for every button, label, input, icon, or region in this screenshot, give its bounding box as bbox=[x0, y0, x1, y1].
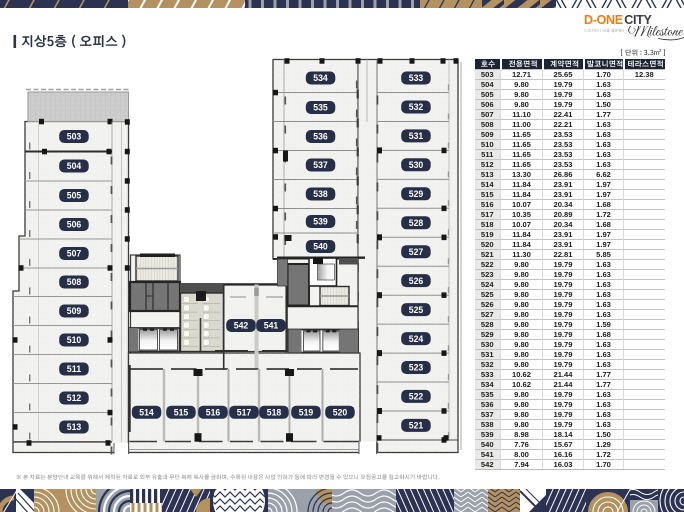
svg-text:522: 522 bbox=[409, 392, 424, 402]
svg-text:524: 524 bbox=[409, 334, 424, 344]
svg-text:542: 542 bbox=[234, 321, 249, 331]
svg-text:506: 506 bbox=[67, 220, 82, 230]
svg-text:504: 504 bbox=[67, 161, 82, 171]
svg-text:536: 536 bbox=[313, 132, 328, 142]
svg-text:516: 516 bbox=[206, 407, 221, 417]
svg-text:540: 540 bbox=[313, 242, 328, 252]
svg-text:520: 520 bbox=[333, 407, 348, 417]
svg-text:535: 535 bbox=[313, 103, 328, 113]
svg-text:526: 526 bbox=[409, 276, 424, 286]
svg-text:503: 503 bbox=[67, 132, 82, 142]
svg-text:539: 539 bbox=[313, 217, 328, 227]
svg-text:537: 537 bbox=[313, 160, 328, 170]
svg-text:514: 514 bbox=[139, 407, 154, 417]
svg-text:528: 528 bbox=[409, 218, 424, 228]
svg-text:530: 530 bbox=[409, 160, 424, 170]
svg-text:533: 533 bbox=[409, 73, 424, 83]
svg-text:541: 541 bbox=[264, 321, 279, 331]
svg-text:531: 531 bbox=[409, 131, 424, 141]
svg-text:509: 509 bbox=[67, 306, 82, 316]
svg-text:521: 521 bbox=[409, 421, 424, 431]
svg-text:505: 505 bbox=[67, 191, 82, 201]
svg-text:523: 523 bbox=[409, 363, 424, 373]
svg-text:538: 538 bbox=[313, 189, 328, 199]
svg-text:519: 519 bbox=[299, 407, 314, 417]
svg-text:534: 534 bbox=[313, 73, 328, 83]
svg-text:527: 527 bbox=[409, 247, 424, 257]
svg-text:513: 513 bbox=[67, 422, 82, 432]
svg-text:511: 511 bbox=[67, 364, 82, 374]
svg-text:525: 525 bbox=[409, 305, 424, 315]
svg-text:532: 532 bbox=[409, 102, 424, 112]
svg-text:512: 512 bbox=[67, 393, 82, 403]
svg-text:507: 507 bbox=[67, 249, 82, 259]
svg-text:510: 510 bbox=[67, 335, 82, 345]
svg-text:518: 518 bbox=[267, 407, 282, 417]
svg-text:529: 529 bbox=[409, 189, 424, 199]
svg-text:508: 508 bbox=[67, 277, 82, 287]
svg-text:515: 515 bbox=[174, 407, 189, 417]
svg-text:517: 517 bbox=[237, 407, 252, 417]
